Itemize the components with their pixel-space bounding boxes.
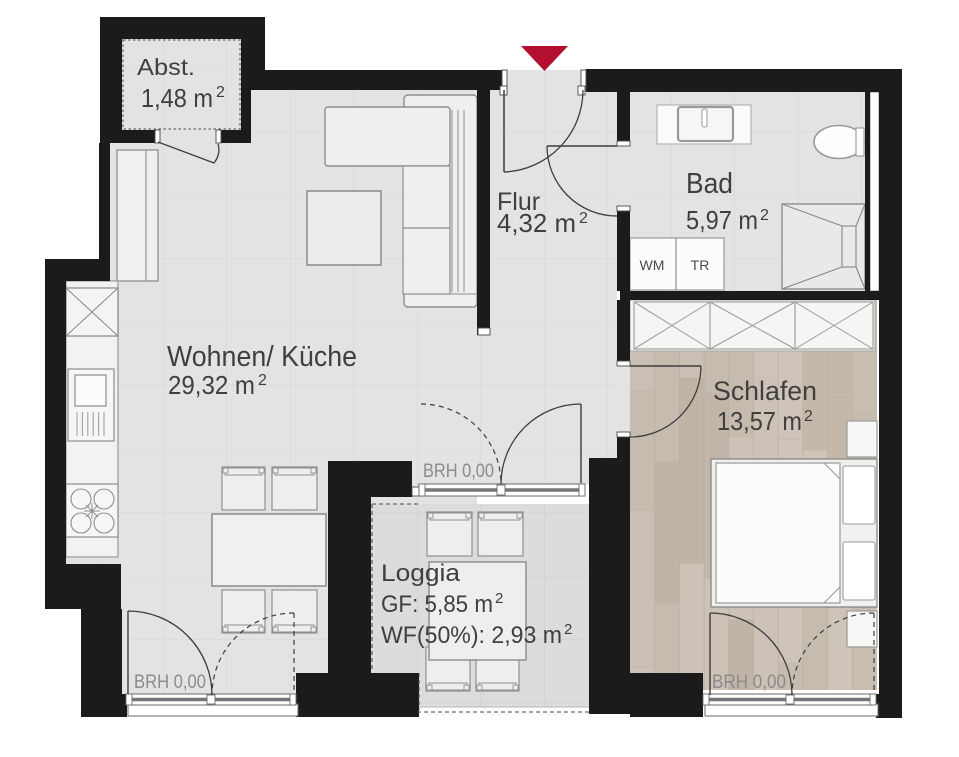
svg-text:GF: 5,85 m: GF: 5,85 m [381,591,493,618]
svg-text:4,32 m: 4,32 m [497,208,576,238]
svg-text:5,97 m: 5,97 m [686,205,758,235]
svg-text:2: 2 [216,84,225,101]
svg-text:Bad: Bad [686,168,733,200]
svg-text:2: 2 [564,621,572,638]
svg-text:Abst.: Abst. [137,54,195,80]
svg-text:Wohnen/ Küche: Wohnen/ Küche [167,341,357,373]
svg-text:TR: TR [691,257,710,273]
svg-text:13,57 m: 13,57 m [717,406,802,436]
svg-text:2: 2 [495,590,503,607]
svg-text:2: 2 [804,408,813,425]
svg-text:WF(50%): 2,93 m: WF(50%): 2,93 m [381,622,562,649]
svg-text:Loggia: Loggia [381,560,461,587]
svg-text:2: 2 [258,372,267,389]
svg-text:2: 2 [760,207,769,224]
svg-text:29,32 m: 29,32 m [168,370,255,400]
svg-text:1,48 m: 1,48 m [141,83,213,113]
svg-text:2: 2 [579,210,588,227]
svg-text:BRH 0,00: BRH 0,00 [712,671,786,693]
svg-text:WM: WM [640,257,665,273]
svg-text:Schlafen: Schlafen [713,376,817,406]
svg-text:BRH 0,00: BRH 0,00 [134,671,206,693]
svg-text:BRH 0,00: BRH 0,00 [423,460,494,482]
